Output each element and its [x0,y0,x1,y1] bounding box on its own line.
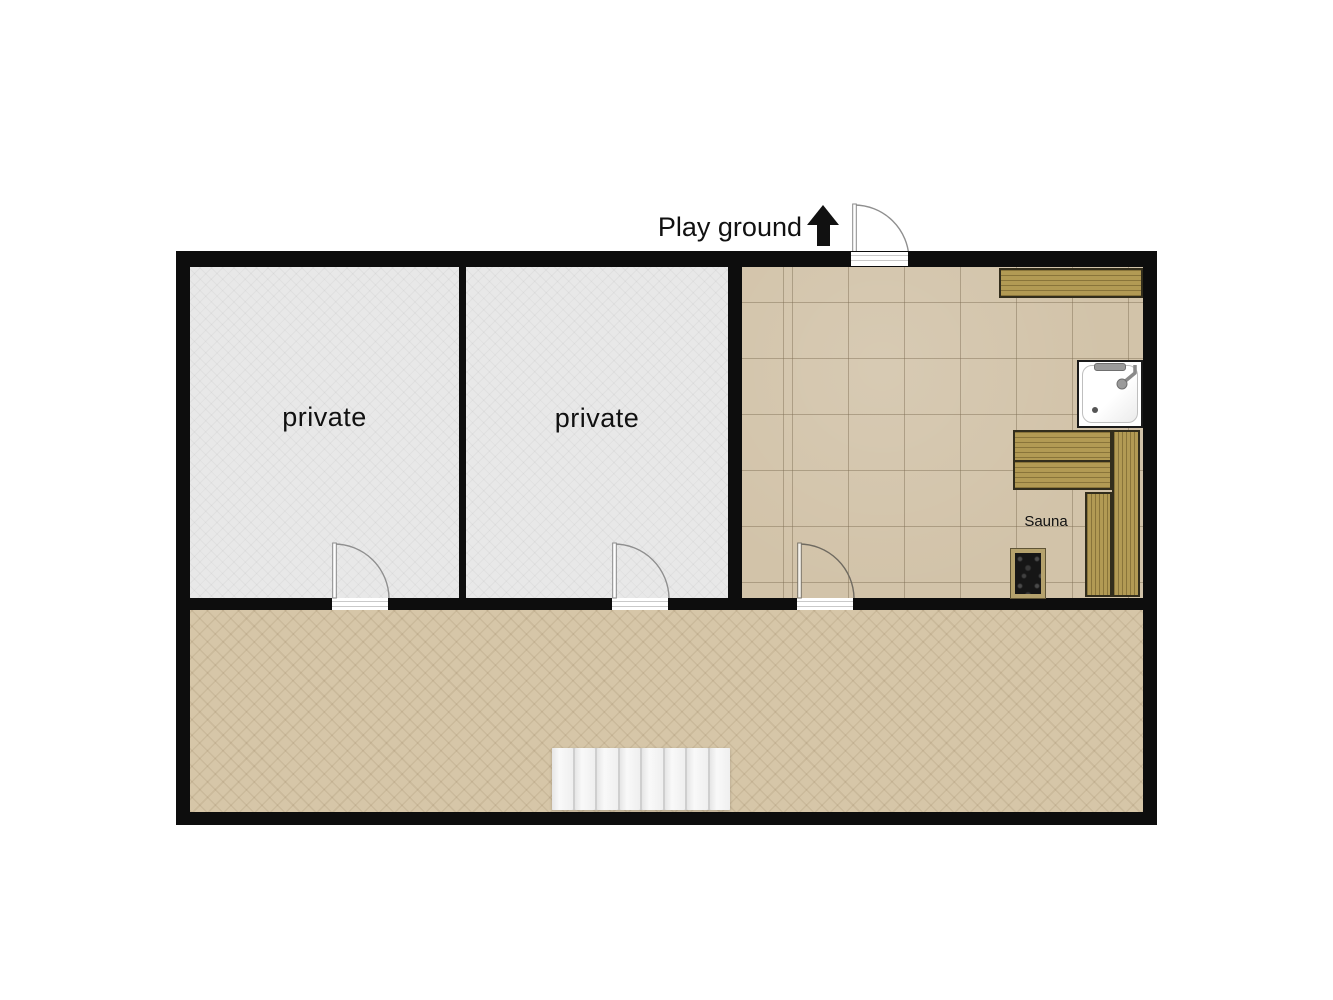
playground-label: Play ground [650,212,802,243]
sauna-label: Sauna [1010,513,1082,530]
bench-tier-divider [1015,460,1110,462]
sauna-bench-top [999,268,1143,298]
stair-step [687,748,708,810]
drain-icon [1092,407,1098,413]
shower-head-icon [1113,364,1139,394]
sauna-room-door-swing-icon [797,540,854,598]
floor-plan: Play ground private private Sauna [0,0,1333,1000]
stair-step [665,748,686,810]
up-arrow-head [807,205,839,225]
sauna-heater [1011,549,1045,598]
up-arrow-shaft [817,225,830,246]
room-private-1-label: private [190,402,459,433]
stair-step [620,748,641,810]
sauna-room-threshold [797,598,853,610]
staircase [552,748,730,810]
room2-threshold [612,598,668,610]
stair-step [642,748,663,810]
room1-threshold [332,598,388,610]
stair-step [710,748,731,810]
sauna-bench-inner [1085,492,1112,597]
room1-door-swing-icon [332,540,389,598]
entrance-threshold [851,252,908,266]
room2-door-swing-icon [612,540,669,598]
room-private-2-label: private [466,403,728,434]
sauna-bench-horizontal [1013,430,1112,490]
sauna-bench-right [1112,430,1140,597]
stair-step [597,748,618,810]
up-arrow-icon [806,205,840,246]
stair-step [552,748,573,810]
stair-step [575,748,596,810]
shower-tray [1077,360,1143,428]
